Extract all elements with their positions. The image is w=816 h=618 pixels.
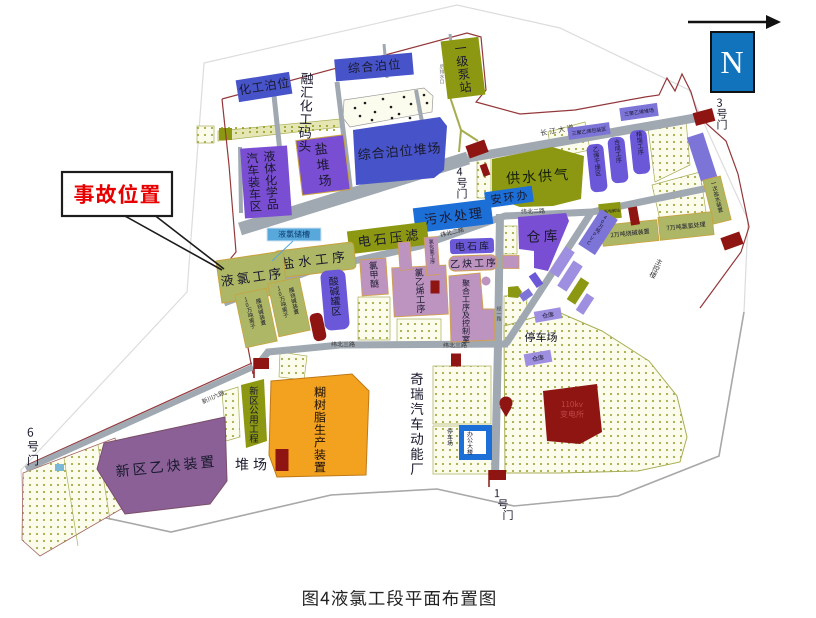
svg-text:N: N [720,44,743,80]
